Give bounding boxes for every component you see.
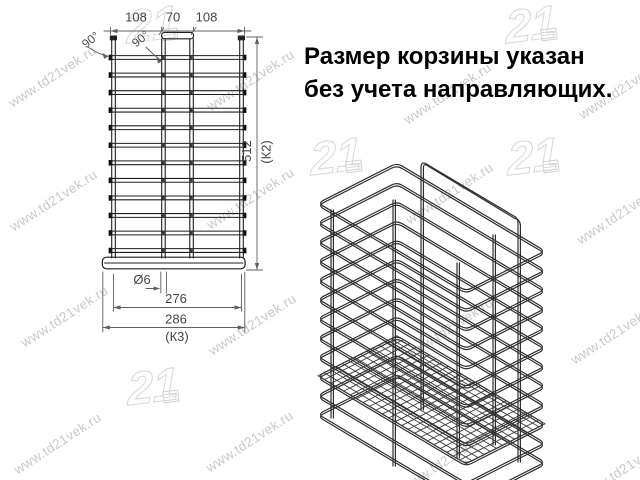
- front-view-handle: [162, 32, 194, 258]
- isometric-view-drawing: [318, 163, 545, 480]
- note-line-2: без учета направляющих.: [304, 73, 624, 106]
- logo-21-icon: 21: [121, 357, 184, 415]
- dim-top-left-label: 108: [125, 10, 147, 25]
- angle-left-label: 90°: [79, 29, 102, 51]
- svg-text:21: 21: [309, 127, 362, 185]
- svg-text:21: 21: [506, 127, 559, 185]
- front-view-drawing: 108 70 108 90° 90° 512 (К2) Ø6 276 286 (…: [79, 10, 273, 345]
- dim-width-outer-label: 286: [165, 312, 187, 327]
- rail-cap: [110, 36, 117, 41]
- dim-top-mid-label: 70: [166, 10, 180, 25]
- logo-21-icon: 21: [304, 127, 367, 185]
- svg-text:21: 21: [126, 357, 179, 415]
- dimension-arrows: [102, 29, 259, 330]
- note-line-1: Размер корзины указан: [304, 40, 624, 73]
- rail-cap: [238, 36, 245, 41]
- front-view-bottom-frame: [102, 257, 245, 269]
- dim-width-inner-label: 276: [165, 291, 187, 306]
- dim-top-right-label: 108: [196, 10, 218, 25]
- logo-21-icon: 21: [501, 127, 564, 185]
- logo-21-icon: 21: [120, 0, 183, 53]
- dim-wire-diameter-label: Ø6: [133, 272, 150, 287]
- technical-drawing-page: www.td21vek.ru www.td21vek.ru www.td21ve…: [0, 0, 640, 480]
- front-view-rails: [112, 38, 244, 258]
- front-view-wires: [109, 55, 247, 254]
- dim-height-label: 512: [239, 140, 254, 162]
- dim-height-code-label: (К2): [259, 140, 274, 163]
- dim-width-code-label: (К3): [165, 329, 188, 344]
- note-text: Размер корзины указан без учета направля…: [304, 40, 624, 106]
